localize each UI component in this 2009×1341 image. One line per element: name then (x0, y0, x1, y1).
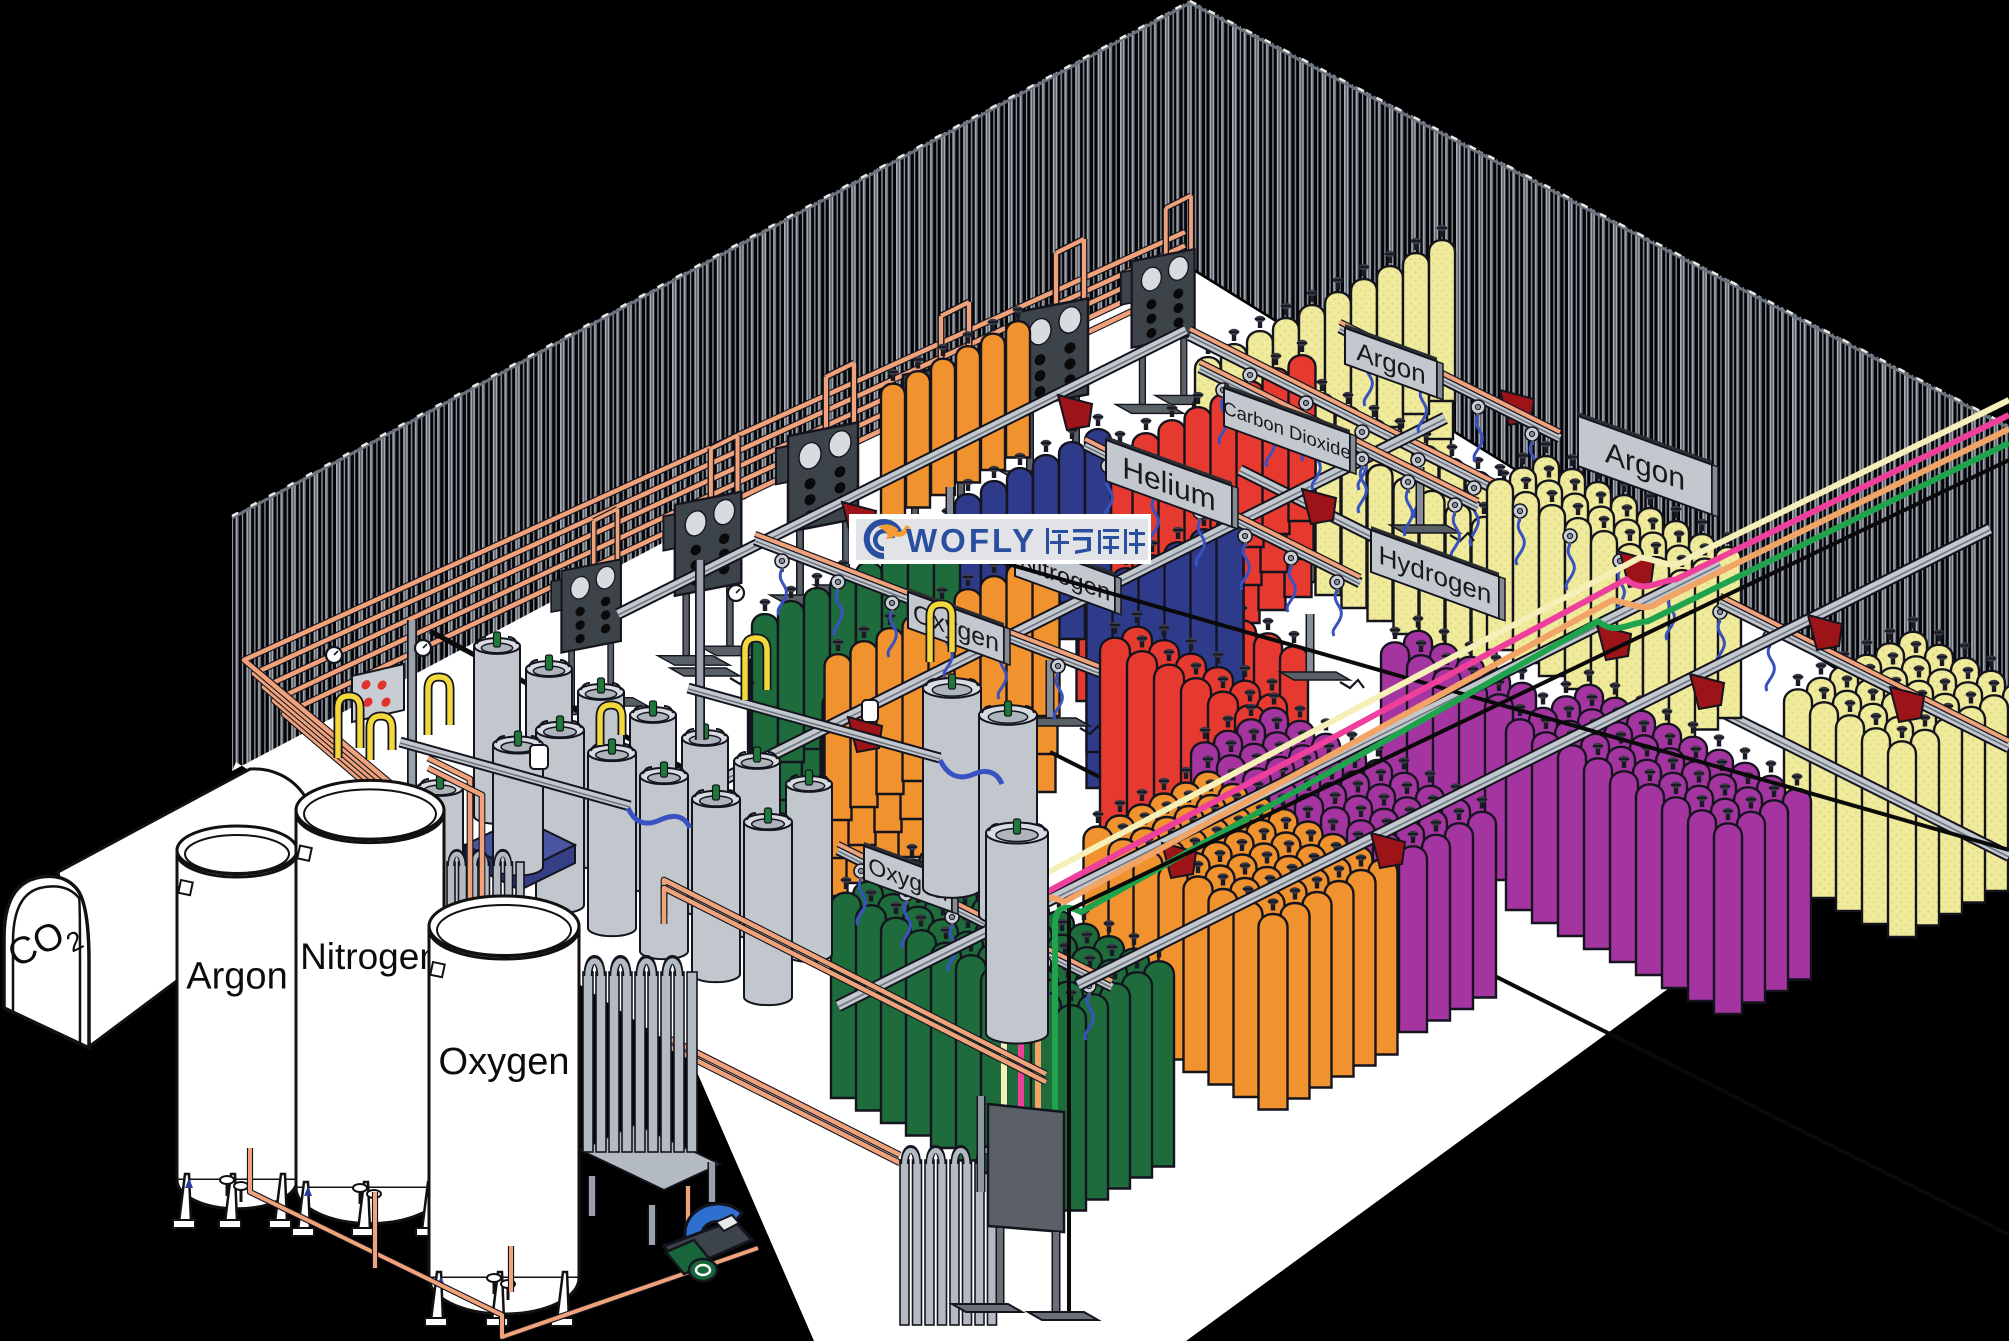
svg-text:WOFLY: WOFLY (906, 522, 1037, 559)
svg-text:Oxygen: Oxygen (439, 1041, 570, 1083)
svg-text:Nitrogen: Nitrogen (300, 936, 440, 977)
svg-text:Argon: Argon (186, 956, 287, 998)
